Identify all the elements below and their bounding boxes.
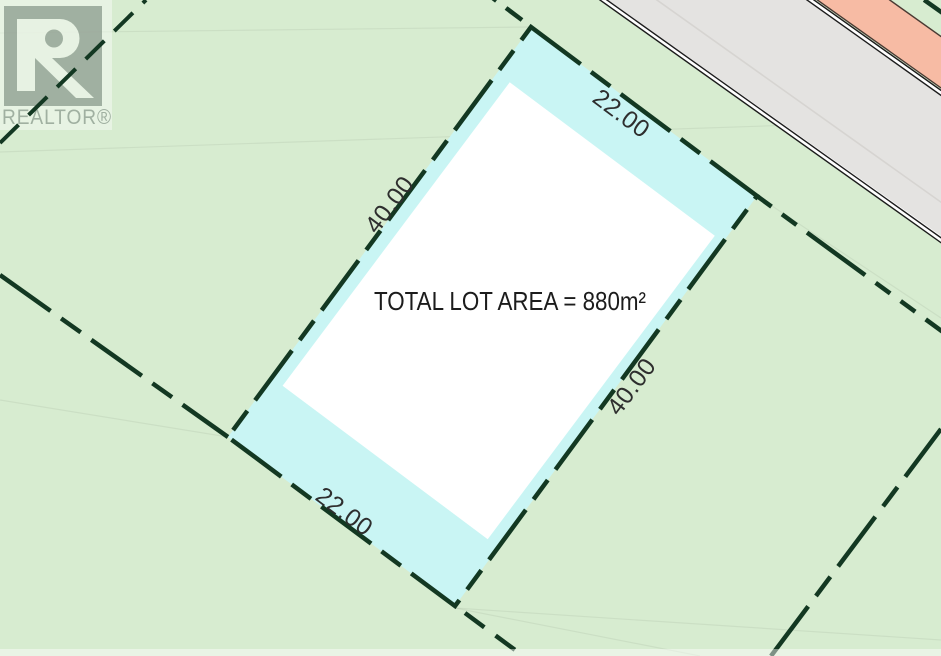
- total-area-label: TOTAL LOT AREA = 880m²: [374, 286, 646, 316]
- r-stem: [17, 19, 35, 91]
- realtor-watermark: REALTOR®: [0, 0, 112, 130]
- r-bowl-counter: [45, 30, 63, 48]
- plat-map-canvas: REALTOR® 22.00 40.00 40.00 22.00 TOTAL: [0, 0, 941, 656]
- bottom-edge-highlight: [0, 649, 941, 656]
- plat-map: REALTOR® 22.00 40.00 40.00 22.00 TOTAL: [0, 0, 941, 656]
